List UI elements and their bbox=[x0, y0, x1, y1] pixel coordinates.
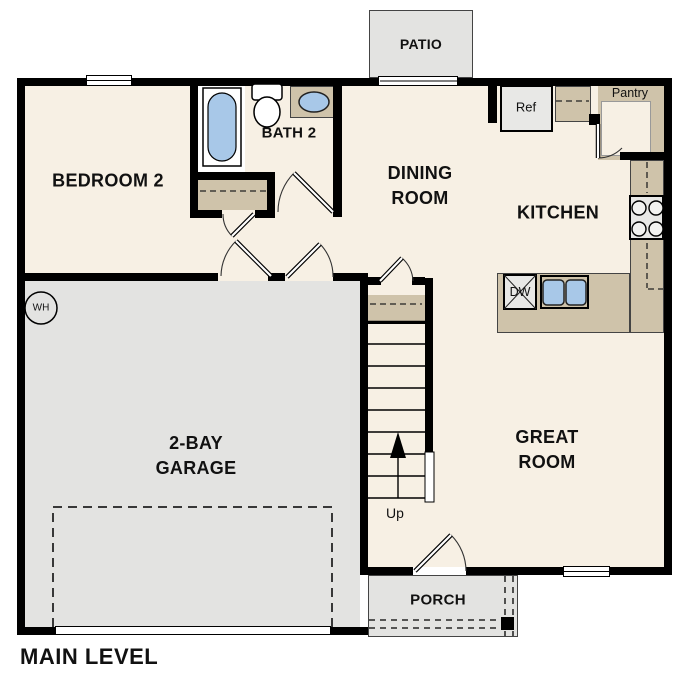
bedroom2-label: BEDROOM 2 bbox=[52, 171, 164, 192]
garage-label: 2-BAY GARAGE bbox=[156, 431, 237, 481]
tub-alcove bbox=[198, 86, 245, 172]
bedroom-window bbox=[86, 75, 132, 86]
wall-front-2 bbox=[466, 567, 563, 575]
greatroom-window bbox=[563, 566, 610, 577]
wall-left bbox=[17, 78, 25, 635]
bath2-label: BATH 2 bbox=[262, 125, 317, 142]
up-label: Up bbox=[386, 505, 404, 521]
wall-garage-top-3 bbox=[333, 273, 368, 281]
kitchen-counter-top bbox=[555, 86, 591, 122]
wall-stair-top-2 bbox=[412, 277, 425, 285]
wall-stair-right bbox=[425, 278, 433, 455]
plan-title: MAIN LEVEL bbox=[20, 644, 158, 670]
hall-closet bbox=[198, 180, 267, 210]
kitchen-counter-right bbox=[630, 160, 664, 333]
stove bbox=[629, 195, 664, 240]
garage-door bbox=[55, 626, 331, 635]
wall-dining-kitchen-stub bbox=[488, 86, 497, 123]
wall-right bbox=[664, 78, 672, 575]
porch-post bbox=[501, 617, 514, 630]
kitchen-label: KITCHEN bbox=[517, 203, 599, 224]
wall-pantry-south bbox=[620, 152, 664, 160]
bath-vanity bbox=[290, 86, 338, 118]
pantry-label: Pantry bbox=[612, 86, 648, 100]
wall-garage-top-2 bbox=[268, 273, 285, 281]
wall-stair-left bbox=[360, 281, 368, 567]
floor-plan: BEDROOM 2 BATH 2 DINING ROOM KITCHEN GRE… bbox=[0, 0, 687, 687]
patio-label: PATIO bbox=[400, 36, 442, 52]
patio-sliding-door bbox=[378, 76, 458, 86]
pantry-interior bbox=[601, 101, 651, 156]
dw-label: DW bbox=[510, 285, 531, 299]
wall-front-1 bbox=[360, 567, 413, 575]
ref-label: Ref bbox=[516, 100, 536, 115]
wall-bedroom-east bbox=[190, 86, 198, 218]
wall-stair-top-1 bbox=[368, 277, 381, 285]
wall-closet-south-1 bbox=[198, 210, 222, 218]
kitchen-sink-counter bbox=[540, 275, 589, 309]
dining-room-label: DINING ROOM bbox=[388, 161, 453, 211]
great-room-label: GREAT ROOM bbox=[515, 425, 578, 475]
wall-counter-stub bbox=[589, 114, 600, 125]
stair-closet bbox=[368, 295, 425, 324]
wall-garage-top-1 bbox=[17, 273, 218, 281]
wall-front-3 bbox=[610, 567, 672, 575]
wall-bath-south bbox=[198, 172, 275, 180]
wall-closet-south-2 bbox=[255, 210, 275, 218]
wh-label: WH bbox=[33, 303, 50, 314]
porch-label: PORCH bbox=[410, 592, 466, 609]
wall-bath-dining bbox=[333, 86, 342, 217]
